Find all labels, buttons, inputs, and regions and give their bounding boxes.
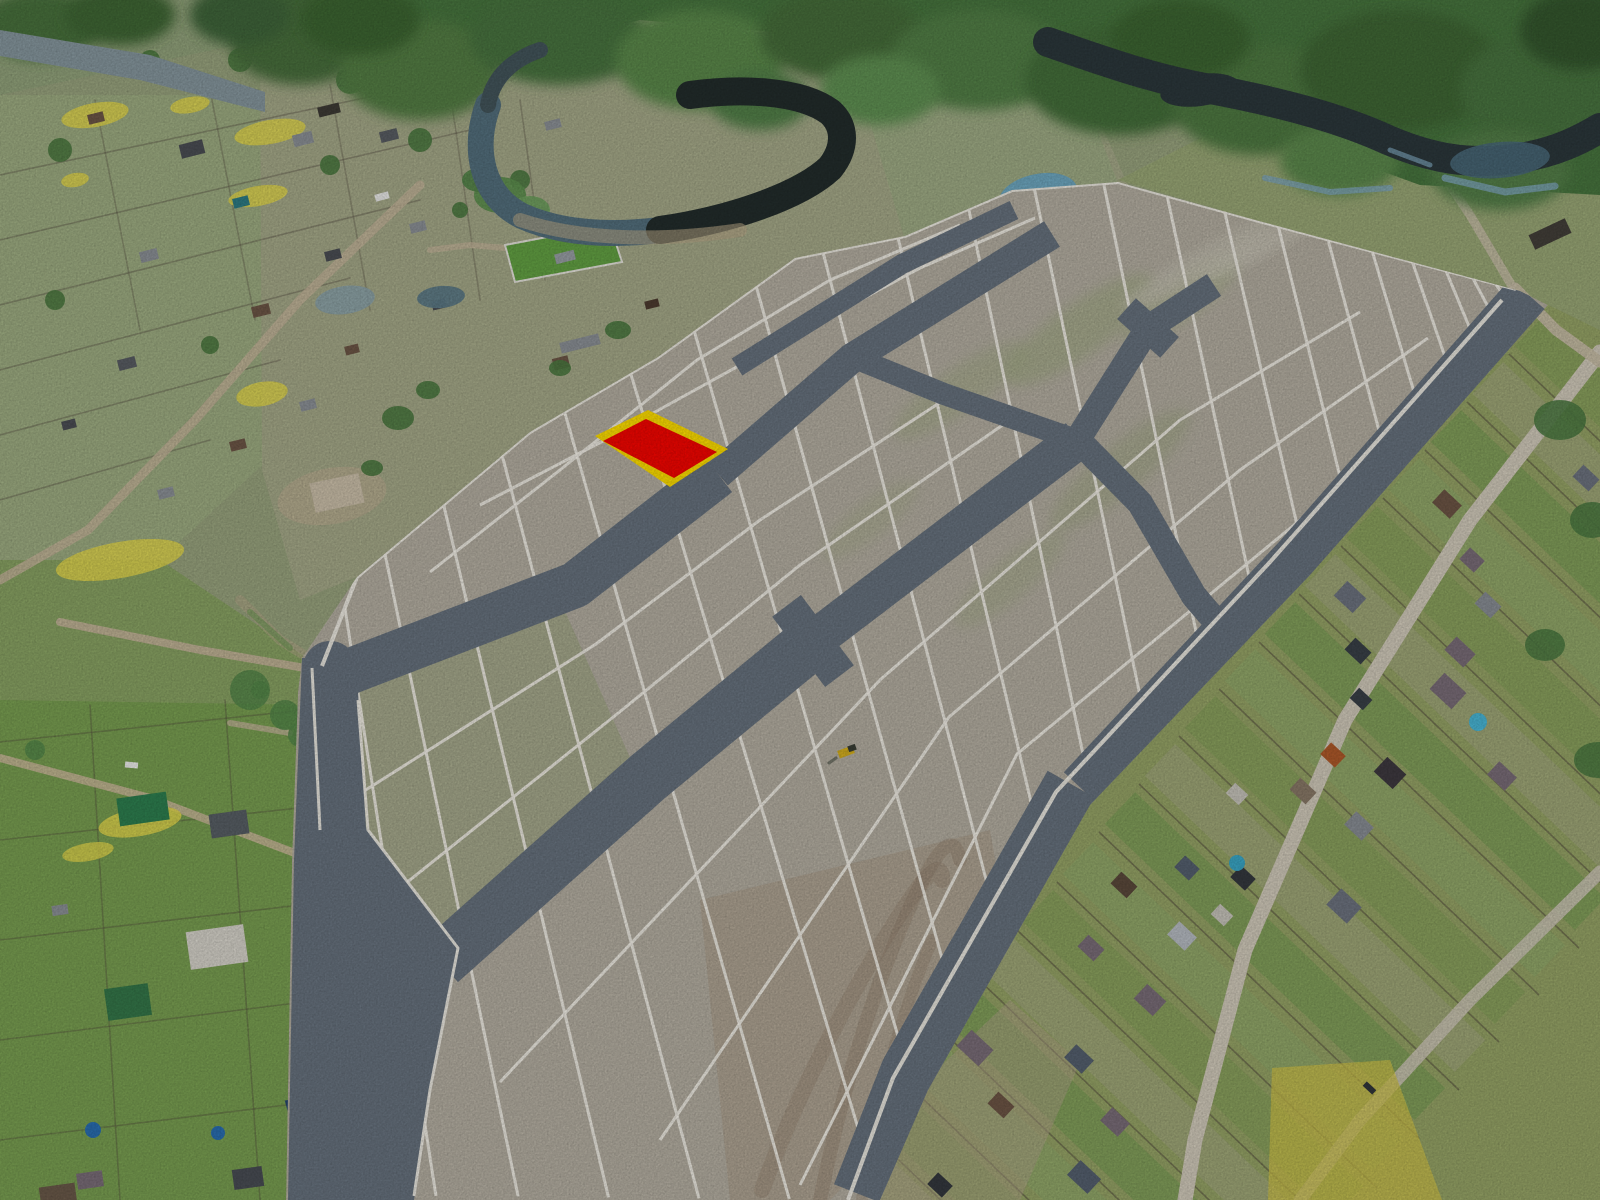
aerial-photo-canvas — [0, 0, 1600, 1200]
photo-grain — [0, 0, 1600, 1200]
aerial-plot-map — [0, 0, 1600, 1200]
